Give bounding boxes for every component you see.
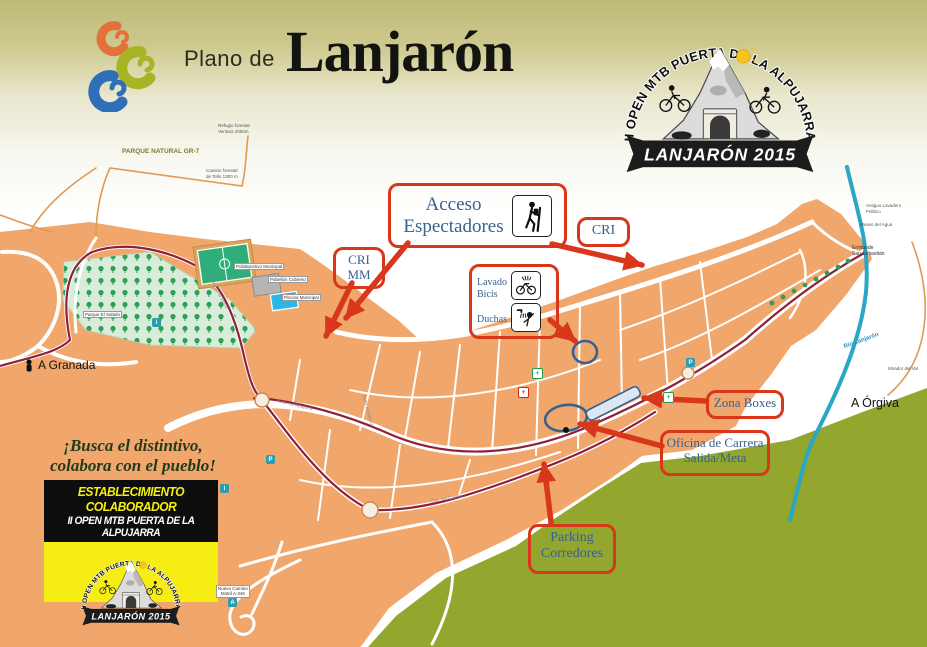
acceso-label: Acceso Espectadores — [403, 194, 503, 238]
lanjaron-swirl-logo — [84, 20, 170, 112]
card-subtitle: II OPEN MTB PUERTA DE LA ALPUJARRA — [53, 515, 209, 539]
label-parque-el-salado: Parque El Salado — [83, 311, 122, 318]
shower-icon — [511, 303, 541, 332]
hiker-icon — [512, 195, 552, 237]
label-a-granada: A Granada — [38, 358, 95, 372]
cri-callout: CRI — [577, 217, 630, 247]
label-polideportivo: Polideportivo Municipal — [234, 263, 284, 270]
parking-corredores-callout: Parking Corredores — [528, 524, 616, 574]
parking-point-icon: P — [686, 358, 695, 367]
event-logo-mini — [79, 542, 183, 629]
motril-facility-icon: A — [228, 598, 237, 607]
label-mirador: Mirador del Val — [888, 366, 918, 372]
start-finish-dot — [563, 427, 569, 433]
zona-boxes-arrow — [644, 398, 706, 401]
bike-wash-icon — [511, 271, 541, 300]
label-lavadero: Antiguo LavaderoPúblico — [866, 203, 901, 214]
pharmacy-icon: + — [663, 392, 674, 403]
label-a-orgiva: A Órgiva — [851, 396, 899, 410]
info-point-icon: i — [152, 318, 161, 327]
map-title: Lanjarón — [286, 18, 513, 85]
label-ermita: Ermita deSan Sebastián — [852, 245, 885, 257]
info-point-icon: i — [220, 484, 229, 493]
collaborator-card-header: ESTABLECIMIENTO COLABORADOR II OPEN MTB … — [44, 480, 218, 542]
label-parque-natural: PARQUE NATURAL GR-7 — [122, 148, 199, 155]
label-piscina: Piscina Municipal — [282, 294, 321, 301]
label-camino-forestal: Camino forestalde Tello 1300 m — [206, 168, 238, 179]
duchas-label: Duchas — [477, 314, 507, 326]
card-title: ESTABLECIMIENTO COLABORADOR — [53, 484, 209, 514]
zona-boxes-callout: Zona Boxes — [706, 390, 784, 419]
a-granada-icon — [24, 359, 35, 372]
parking-point-icon: P — [266, 455, 275, 464]
cri-mm-callout: CRI MM — [333, 247, 385, 289]
health-center-icon: + — [518, 387, 529, 398]
oficina-carrera-callout: Oficina de Carrera Salida/Meta — [660, 430, 770, 476]
event-logo — [620, 12, 820, 179]
cri-arrow — [552, 244, 642, 265]
lavado-duchas-callout: Lavado Bicis Duchas — [469, 264, 559, 339]
collaboration-slogan: ¡Busca el distintivo, colabora con el pu… — [30, 436, 236, 475]
lanjaron-map-page: { "header": { "plano_de": "Plano de", "l… — [0, 0, 927, 647]
collaborator-card: ESTABLECIMIENTO COLABORADOR II OPEN MTB … — [44, 480, 218, 602]
label-pabellon: Pabellón Cubierto — [268, 276, 308, 283]
label-camino-motril: Nuevo CaminoMotril A-346 — [216, 585, 250, 598]
label-refugio-forestal: Refugio forestalVentura 2000m — [218, 123, 250, 134]
pharmacy-icon: + — [532, 368, 543, 379]
map-title-prefix: Plano de — [184, 46, 275, 72]
lavado-label: Lavado Bicis — [477, 277, 507, 300]
label-museo-agua: Museo del Agua — [860, 222, 892, 228]
acceso-espectadores-callout: Acceso Espectadores — [388, 183, 567, 248]
